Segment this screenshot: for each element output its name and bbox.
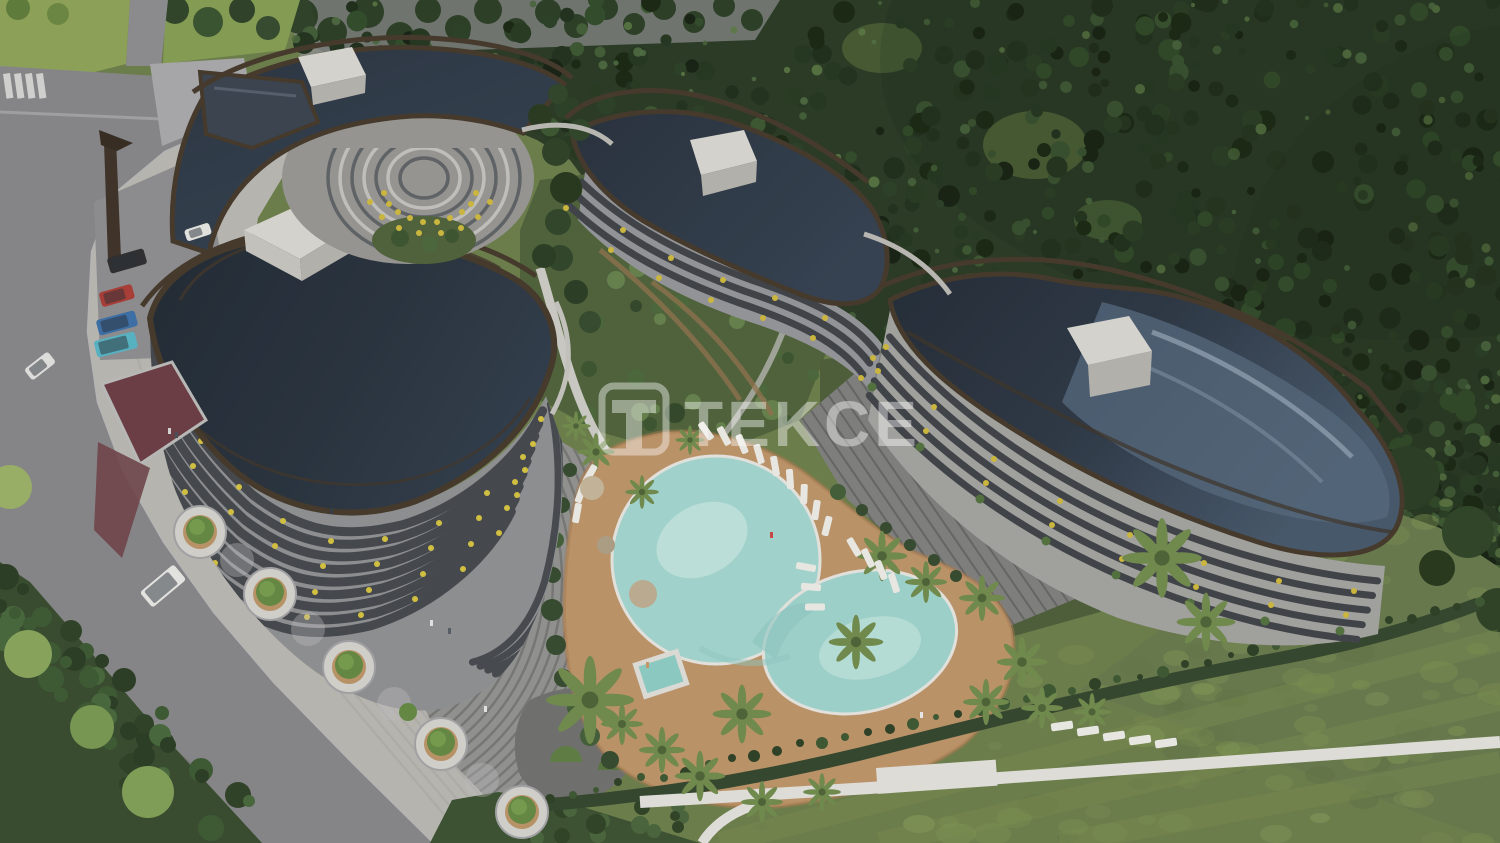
svg-text:TEKCE: TEKCE (684, 388, 921, 460)
